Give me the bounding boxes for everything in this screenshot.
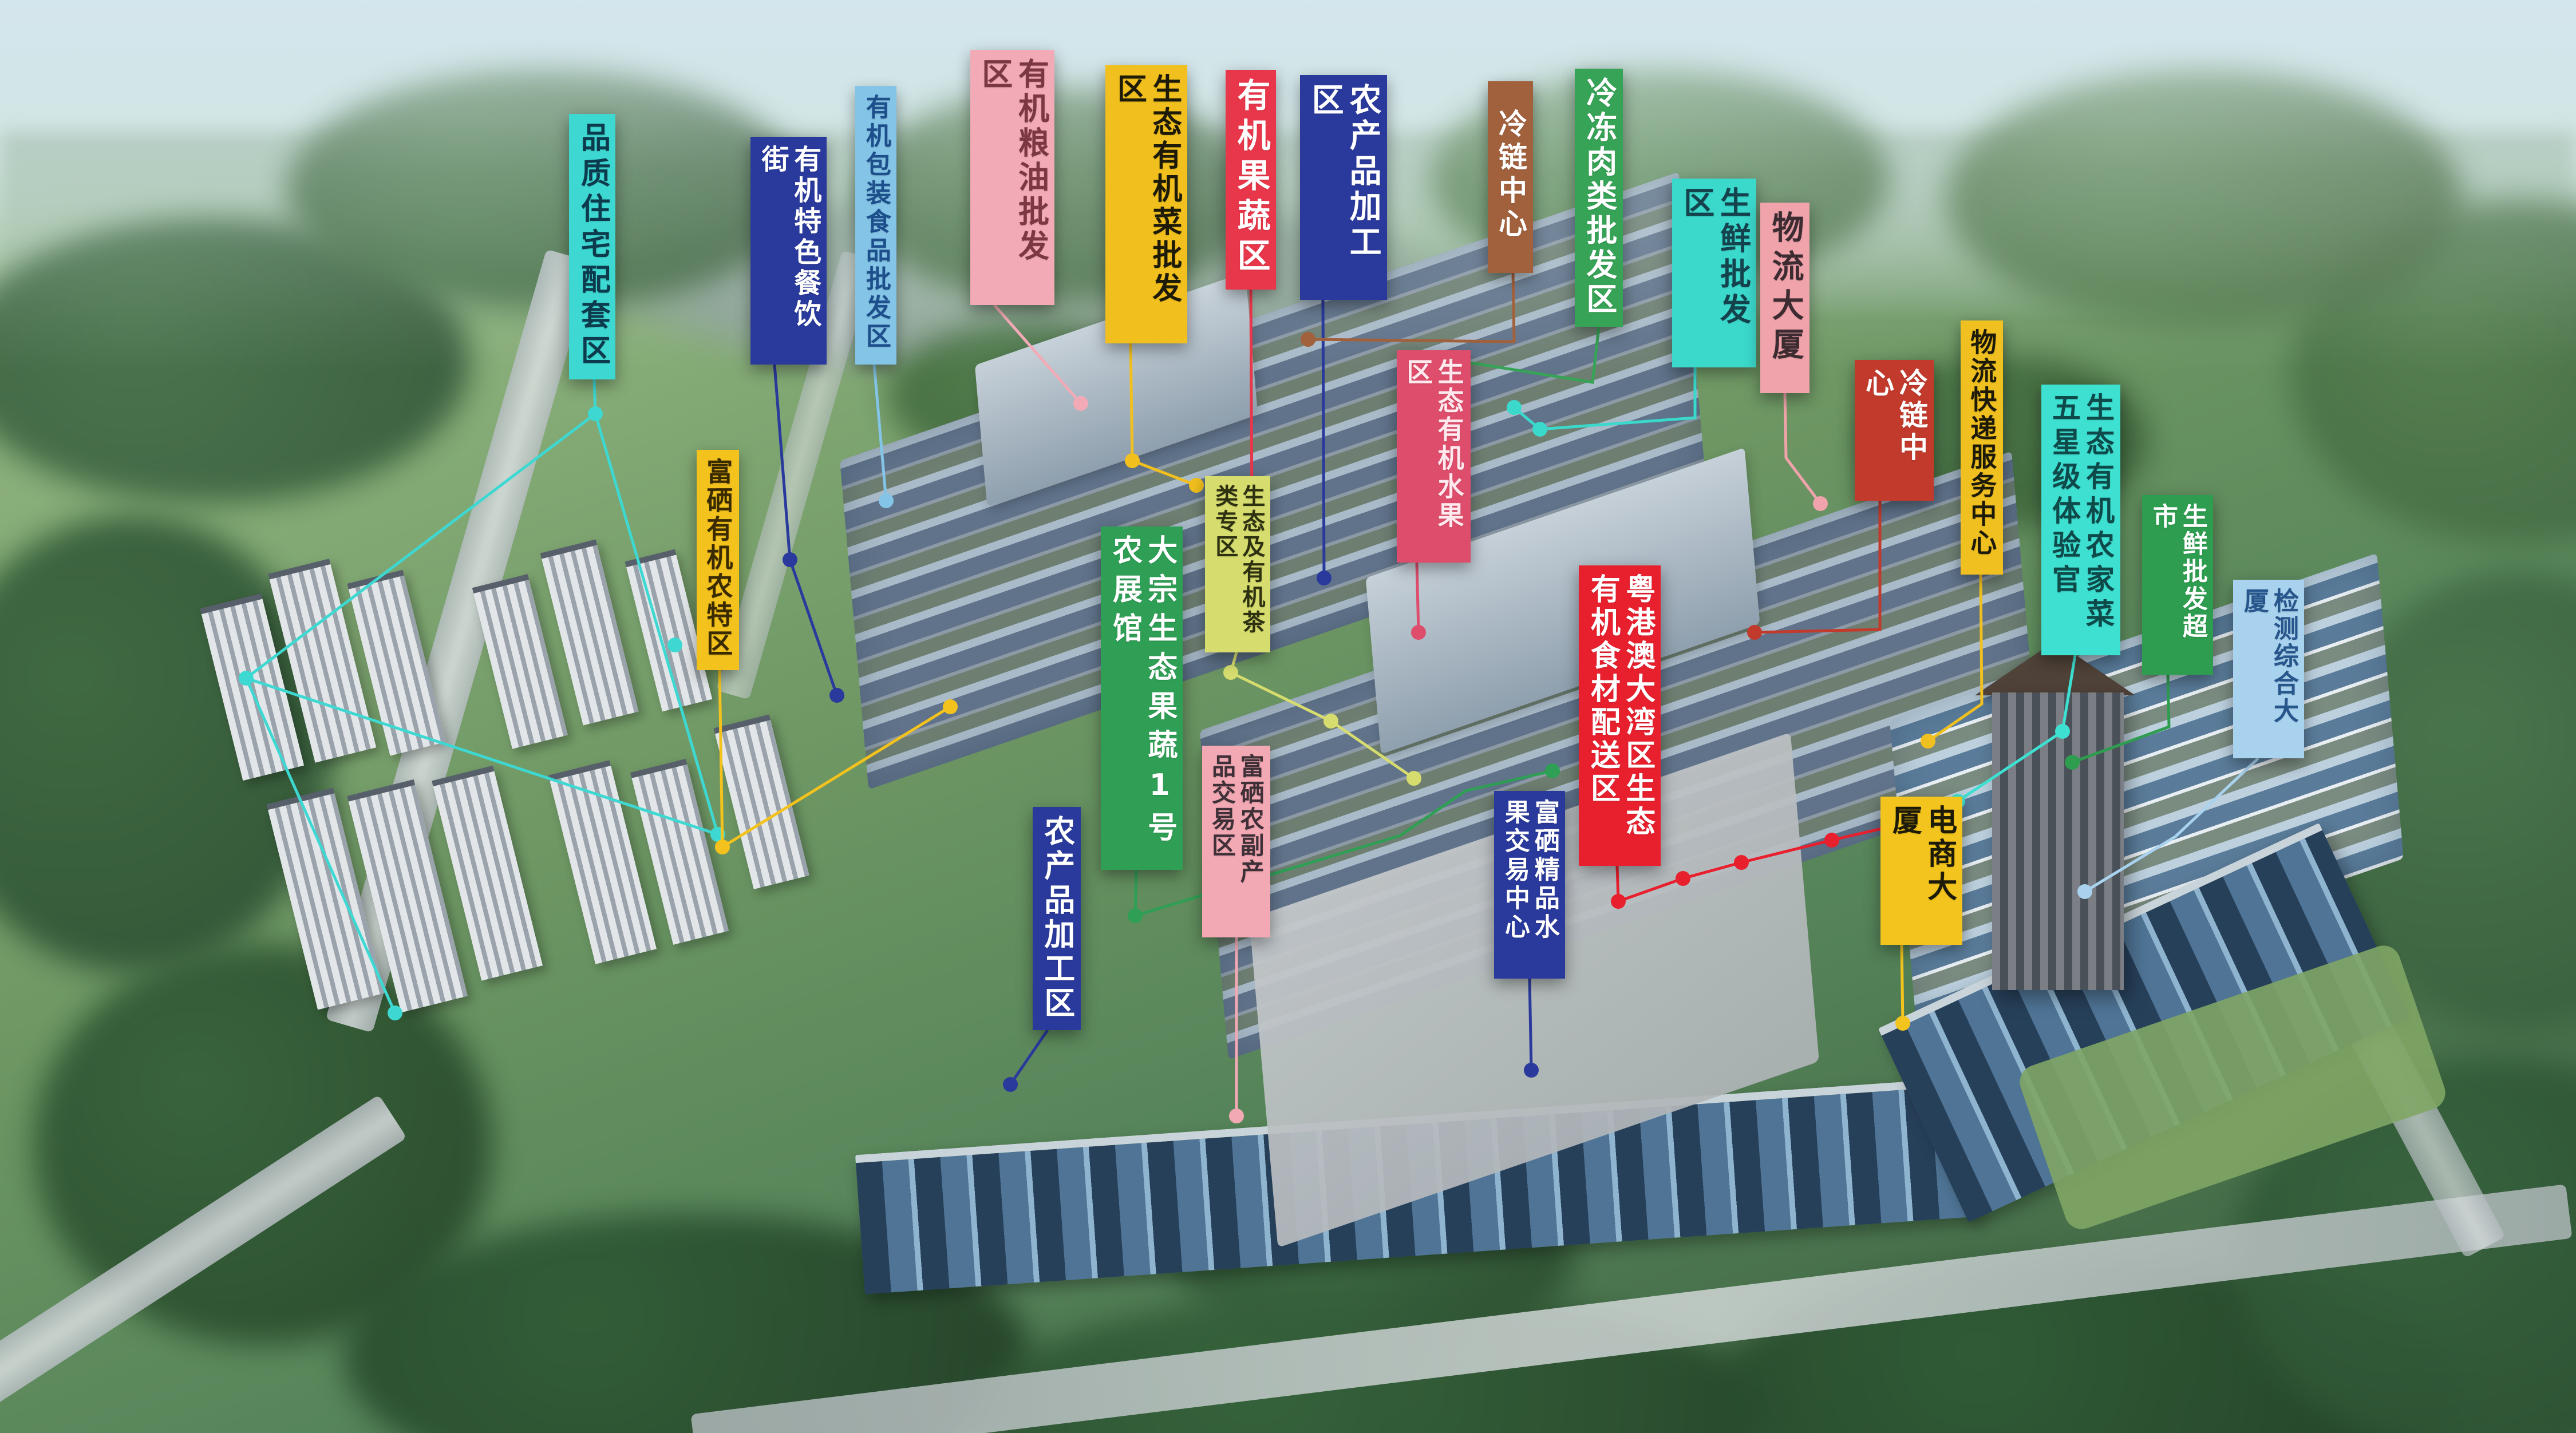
leader-line xyxy=(2085,758,2258,892)
leader-line xyxy=(1417,563,1419,632)
zone-label-text: 富硒农副产 xyxy=(1236,754,1265,929)
leader-line xyxy=(1135,771,1552,916)
zone-label-text: 五星级体验官 xyxy=(2047,393,2081,647)
zone-label-testing-complex-tower: 检测综合大厦 xyxy=(2233,580,2304,758)
leader-line xyxy=(1010,1030,1048,1084)
leader-line xyxy=(1902,945,1903,1023)
zone-label-eco-organic-fruit-zone: 生态有机水果区 xyxy=(1397,350,1471,563)
zone-label-text: 果交易中心 xyxy=(1500,799,1530,971)
zone-label-organic-grain-oil-wholesale: 有机粮油批发区 xyxy=(970,50,1054,305)
zone-label-cold-chain-center-1: 冷链中心 xyxy=(1488,81,1533,273)
leader-node xyxy=(1301,332,1315,347)
leader-line xyxy=(994,305,1081,403)
leader-node xyxy=(829,688,844,703)
leader-line xyxy=(1323,300,1324,578)
leader-node xyxy=(879,493,894,508)
zone-label-text: 冷链中心 xyxy=(1494,109,1527,265)
leader-line xyxy=(1928,575,1982,741)
leader-node xyxy=(1003,1077,1018,1092)
leader-node xyxy=(1747,625,1762,640)
leader-lines-overlay xyxy=(0,0,2576,1433)
zone-label-agri-processing-north: 农产品加工区 xyxy=(1300,75,1387,300)
leader-line xyxy=(1785,393,1820,504)
leader-line xyxy=(1514,367,1695,429)
zone-label-bulk-eco-produce-expo: 大宗生态果蔬1号农展馆 xyxy=(1101,527,1183,870)
leader-node xyxy=(1676,871,1690,886)
leader-node xyxy=(1125,453,1140,468)
zone-label-gba-organic-food-distribution: 粤港澳大湾区生态有机食材配送区 xyxy=(1579,565,1661,866)
leader-line xyxy=(1617,822,1909,901)
leader-node xyxy=(1189,478,1204,493)
zone-label-logistics-tower: 物流大厦 xyxy=(1760,203,1809,393)
leader-line xyxy=(874,365,886,501)
zone-label-organic-packaged-food-wholesale: 有机包装食品批发区 xyxy=(855,86,896,365)
zone-label-quality-residential: 品质住宅配套区 xyxy=(569,114,615,379)
leader-line xyxy=(775,365,837,695)
zone-label-logistics-express-center: 物流快递服务中心 xyxy=(1961,320,2003,575)
zone-label-cold-chain-center-2: 冷链中心 xyxy=(1855,360,1934,501)
zone-label-text: 生态有机水果区 xyxy=(1402,358,1465,555)
leader-node xyxy=(1895,1016,1910,1031)
leader-node xyxy=(1223,665,1238,680)
leader-node xyxy=(1229,1109,1244,1123)
leader-node xyxy=(1317,571,1332,585)
zone-label-text: 富硒精品水 xyxy=(1530,799,1559,971)
zone-label-text: 生鲜批发超市 xyxy=(2148,503,2207,667)
leader-node xyxy=(1813,496,1828,511)
zone-label-text: 农展馆 xyxy=(1107,535,1141,862)
zone-label-text: 农产品加工区 xyxy=(1306,83,1381,292)
leader-line xyxy=(1131,343,1196,485)
leader-node xyxy=(667,638,682,652)
leader-node xyxy=(1532,422,1547,437)
leader-node xyxy=(588,406,603,421)
leader-node xyxy=(2065,755,2080,770)
leader-node xyxy=(1323,714,1338,729)
leader-line xyxy=(1530,979,1531,1070)
zone-label-eco-organic-vegetable-wholesale: 生态有机菜批发区 xyxy=(1105,65,1187,343)
zone-label-text: 有机果蔬区 xyxy=(1231,78,1270,282)
leader-node xyxy=(1734,855,1749,870)
leader-node xyxy=(1073,396,1088,411)
leader-line xyxy=(1449,327,1599,382)
masterplan-canvas: 品质住宅配套区 有机特色餐饮街 有机包装食品批发区 有机粮油批发区 生态有机菜批… xyxy=(0,0,2576,1433)
leader-node xyxy=(388,1006,402,1020)
leader-node xyxy=(1824,833,1839,848)
zone-label-text: 生态及有机茶 xyxy=(1238,484,1265,644)
leader-node xyxy=(1545,763,1560,778)
leader-node xyxy=(2055,724,2070,739)
zone-label-text: 品交易区 xyxy=(1208,754,1236,929)
zone-label-text: 农产品加工区 xyxy=(1038,815,1075,1022)
leader-line xyxy=(2072,675,2169,762)
zone-label-eco-organic-tea-zone: 生态及有机茶类专区 xyxy=(1205,476,1270,652)
zone-label-text: 大宗生态果蔬1号 xyxy=(1141,535,1176,862)
leader-line xyxy=(246,379,718,834)
leader-node xyxy=(943,699,958,714)
zone-label-organic-restaurant-street: 有机特色餐饮街 xyxy=(750,137,827,365)
zone-label-text: 检测综合大厦 xyxy=(2239,588,2298,750)
leader-node xyxy=(1524,1063,1539,1078)
zone-label-text: 生鲜批发区 xyxy=(1678,187,1751,359)
zone-label-text: 富硒有机农特区 xyxy=(702,458,733,662)
zone-label-text: 生态有机菜批发区 xyxy=(1111,73,1182,335)
leader-line xyxy=(246,678,395,1013)
zone-label-text: 冷链中心 xyxy=(1860,368,1928,493)
leader-node xyxy=(1611,894,1626,909)
zone-label-agri-processing-south: 农产品加工区 xyxy=(1033,807,1081,1030)
zone-label-eco-farmhouse-experience: 生态有机农家菜五星级体验官 xyxy=(2041,385,2120,655)
zone-label-text: 类专区 xyxy=(1211,484,1238,644)
leader-node xyxy=(1507,400,1522,415)
leader-node xyxy=(1921,734,1935,749)
leader-node xyxy=(783,552,797,567)
zone-label-text: 物流大厦 xyxy=(1766,211,1804,385)
zone-label-frozen-meat-wholesale: 冷冻肉类批发区 xyxy=(1575,69,1623,327)
zone-label-organic-fruit-vegetable-zone: 有机果蔬区 xyxy=(1226,70,1276,290)
zone-label-text: 生态有机农家菜 xyxy=(2081,393,2115,647)
leader-node xyxy=(1128,908,1143,923)
zone-label-selenium-premium-fruit-trading: 富硒精品水果交易中心 xyxy=(1494,791,1565,979)
zone-label-text: 有机包装食品批发区 xyxy=(861,94,891,357)
leader-node xyxy=(1411,625,1426,640)
zone-label-fresh-wholesale-supermarket: 生鲜批发超市 xyxy=(2142,495,2213,675)
zone-label-text: 有机食材配送区 xyxy=(1585,573,1619,858)
zone-label-text: 物流快递服务中心 xyxy=(1966,328,1997,567)
leader-node xyxy=(1406,771,1421,786)
zone-label-text: 粤港澳大湾区生态 xyxy=(1619,573,1654,858)
leader-line xyxy=(1755,501,1880,632)
zone-label-text: 品质住宅配套区 xyxy=(575,122,610,371)
leader-node xyxy=(2077,884,2092,899)
zone-label-fresh-wholesale-zone: 生鲜批发区 xyxy=(1672,179,1756,367)
zone-label-text: 有机特色餐饮街 xyxy=(756,145,821,357)
zone-label-text: 有机粮油批发区 xyxy=(976,58,1049,297)
zone-label-text: 电商大厦 xyxy=(1886,805,1957,937)
zone-label-selenium-agri-specialty: 富硒有机农特区 xyxy=(697,450,739,670)
zone-label-text: 冷冻肉类批发区 xyxy=(1581,77,1617,319)
leader-node xyxy=(715,840,730,854)
zone-label-selenium-agri-byproduct-trading: 富硒农副产品交易区 xyxy=(1202,746,1270,937)
zone-label-ecommerce-tower: 电商大厦 xyxy=(1880,797,1962,945)
